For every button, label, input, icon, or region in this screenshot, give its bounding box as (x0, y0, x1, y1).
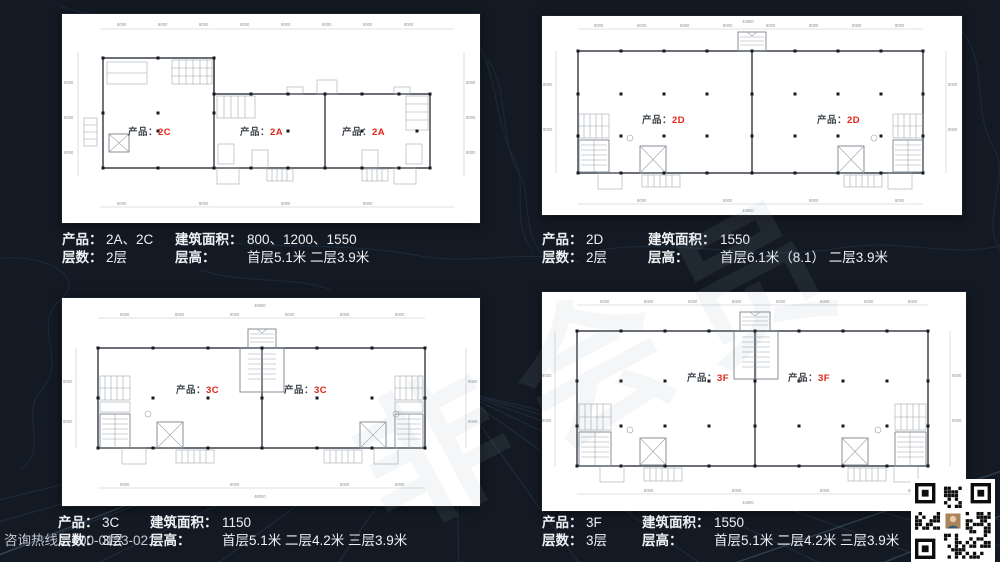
svg-text:8000: 8000 (852, 23, 862, 28)
svg-text:8000: 8000 (363, 201, 373, 206)
svg-text:8000: 8000 (468, 379, 478, 384)
qr-code (911, 479, 995, 562)
spec-label: 层数： (62, 249, 106, 267)
spec-value: 1550 (720, 232, 750, 247)
svg-text:8000: 8000 (363, 22, 373, 27)
spec-label: 层高： (648, 249, 720, 267)
svg-text:8000: 8000 (340, 312, 350, 317)
svg-text:8000: 8000 (468, 419, 478, 424)
svg-text:8000: 8000 (542, 418, 552, 423)
spec-block-3f: 产品：3F建筑面积：1550 层数：3层层高：首层5.1米 二层4.2米 三层3… (542, 514, 899, 550)
svg-text:8000: 8000 (63, 419, 73, 424)
svg-text:8000: 8000 (895, 23, 905, 28)
svg-text:8000: 8000 (809, 198, 819, 203)
svg-text:8000: 8000 (117, 22, 127, 27)
spec-label: 建筑面积： (642, 514, 714, 532)
spec-value: 3层 (102, 533, 123, 548)
svg-text:8000: 8000 (395, 482, 405, 487)
spec-value: 1150 (222, 515, 251, 530)
spec-value: 首层5.1米 二层3.9米 (247, 250, 369, 265)
spec-value: 1550 (714, 515, 744, 530)
spec-label: 建筑面积： (648, 231, 720, 249)
spec-label: 产品： (542, 514, 586, 532)
spec-value: 2层 (106, 250, 127, 265)
svg-text:8000: 8000 (117, 201, 127, 206)
spec-value: 3C (102, 515, 119, 530)
svg-text:8000: 8000 (644, 299, 654, 304)
spec-value: 2A、2C (106, 232, 153, 247)
svg-text:8000: 8000 (820, 299, 830, 304)
svg-text:8000: 8000 (948, 127, 958, 132)
svg-text:8000: 8000 (281, 201, 291, 206)
svg-text:8000: 8000 (120, 482, 130, 487)
svg-text:8000: 8000 (908, 299, 918, 304)
unit-label: 产品：2D (817, 114, 860, 126)
spec-label: 层数： (542, 249, 586, 267)
svg-text:8000: 8000 (322, 22, 332, 27)
svg-text:8000: 8000 (199, 22, 209, 27)
svg-text:8000: 8000 (637, 198, 647, 203)
spec-value: 3层 (586, 533, 607, 548)
unit-label: 产品：2D (642, 114, 685, 126)
spec-label: 层高： (642, 532, 714, 550)
floor-plan-3f: 80008000 80008000 80008000 80008000 8000… (542, 292, 966, 511)
unit-label: 产品：3C (176, 384, 219, 396)
svg-text:8000: 8000 (158, 22, 168, 27)
svg-text:8000: 8000 (809, 23, 819, 28)
unit-label: 产品：2A (240, 126, 283, 138)
spec-label: 产品： (542, 231, 586, 249)
svg-text:8000: 8000 (543, 127, 553, 132)
svg-text:8000: 8000 (820, 488, 830, 493)
spec-value: 2层 (586, 250, 607, 265)
svg-text:8000: 8000 (285, 312, 295, 317)
unit-label: 产品：3F (788, 372, 830, 384)
svg-text:8000: 8000 (340, 482, 350, 487)
spec-value: 首层5.1米 二层4.2米 三层3.9米 (222, 533, 407, 548)
svg-text:8000: 8000 (864, 299, 874, 304)
svg-text:8000: 8000 (230, 482, 240, 487)
svg-text:8000: 8000 (723, 198, 733, 203)
svg-text:8000: 8000 (230, 312, 240, 317)
spec-label: 层数： (542, 532, 586, 550)
svg-text:8000: 8000 (766, 23, 776, 28)
svg-text:8000: 8000 (952, 373, 962, 378)
presentation-slide: 80008000 80008000 80008000 80008000 8000… (0, 0, 1000, 562)
svg-text:48000: 48000 (254, 494, 266, 499)
svg-text:8000: 8000 (240, 22, 250, 27)
svg-text:8000: 8000 (680, 23, 690, 28)
svg-text:44800: 44800 (742, 500, 754, 505)
svg-text:8000: 8000 (895, 198, 905, 203)
spec-block-2a-2c: 产品：2A、2C建筑面积：800、1200、1550 层数：2层层高：首层5.1… (62, 231, 369, 267)
svg-text:8000: 8000 (64, 80, 74, 85)
svg-text:8000: 8000 (542, 373, 552, 378)
svg-text:8000: 8000 (466, 115, 476, 120)
unit-label: 产品：3F (687, 372, 729, 384)
spec-label: 建筑面积： (175, 231, 247, 249)
svg-text:8000: 8000 (120, 312, 130, 317)
svg-text:8000: 8000 (64, 115, 74, 120)
svg-text:8000: 8000 (395, 312, 405, 317)
svg-text:8000: 8000 (466, 80, 476, 85)
svg-text:8000: 8000 (281, 22, 291, 27)
svg-text:44800: 44800 (742, 19, 754, 24)
svg-text:48000: 48000 (254, 303, 266, 308)
svg-text:8000: 8000 (175, 312, 185, 317)
unit-label: 产品：3C (284, 384, 327, 396)
spec-label: 产品： (62, 231, 106, 249)
floor-plan-2d: 44800 80008000 80008000 80008000 8000800… (542, 16, 962, 215)
spec-label: 层高： (150, 532, 222, 550)
qr-avatar (944, 512, 962, 530)
unit-label: 产品：2A (342, 126, 385, 138)
spec-label: 建筑面积： (150, 514, 222, 532)
svg-text:8000: 8000 (952, 418, 962, 423)
svg-text:8000: 8000 (688, 299, 698, 304)
spec-block-3c: 产品：3C建筑面积：1150 层数：3层层高：首层5.1米 二层4.2米 三层3… (58, 514, 407, 550)
unit-label: 产品：2C (128, 126, 171, 138)
spec-value: 3F (586, 515, 602, 530)
svg-text:8000: 8000 (199, 201, 209, 206)
svg-text:8000: 8000 (64, 150, 74, 155)
svg-text:8000: 8000 (543, 82, 553, 87)
svg-text:8000: 8000 (732, 488, 742, 493)
svg-text:8000: 8000 (63, 379, 73, 384)
spec-block-2d: 产品：2D建筑面积：1550 层数：2层层高：首层6.1米（8.1） 二层3.9… (542, 231, 888, 267)
svg-text:8000: 8000 (637, 23, 647, 28)
floor-plan-3c: 48000 80008000 80008000 80008000 8000800… (62, 298, 480, 506)
svg-text:8000: 8000 (723, 23, 733, 28)
spec-label: 产品： (58, 514, 102, 532)
svg-text:8000: 8000 (600, 299, 610, 304)
spec-value: 首层6.1米（8.1） 二层3.9米 (720, 250, 888, 265)
svg-text:8000: 8000 (644, 488, 654, 493)
svg-text:8000: 8000 (732, 299, 742, 304)
floor-plan-2a-2c: 80008000 80008000 80008000 80008000 8000… (62, 14, 480, 223)
svg-text:44800: 44800 (742, 208, 754, 213)
svg-text:8000: 8000 (594, 23, 604, 28)
svg-text:8000: 8000 (948, 82, 958, 87)
spec-value: 800、1200、1550 (247, 232, 357, 247)
spec-label: 层数： (58, 532, 102, 550)
spec-label: 层高： (175, 249, 247, 267)
spec-value: 首层5.1米 二层4.2米 三层3.9米 (714, 533, 899, 548)
svg-text:8000: 8000 (776, 299, 786, 304)
svg-text:8000: 8000 (466, 150, 476, 155)
spec-value: 2D (586, 232, 603, 247)
svg-text:8000: 8000 (404, 22, 414, 27)
